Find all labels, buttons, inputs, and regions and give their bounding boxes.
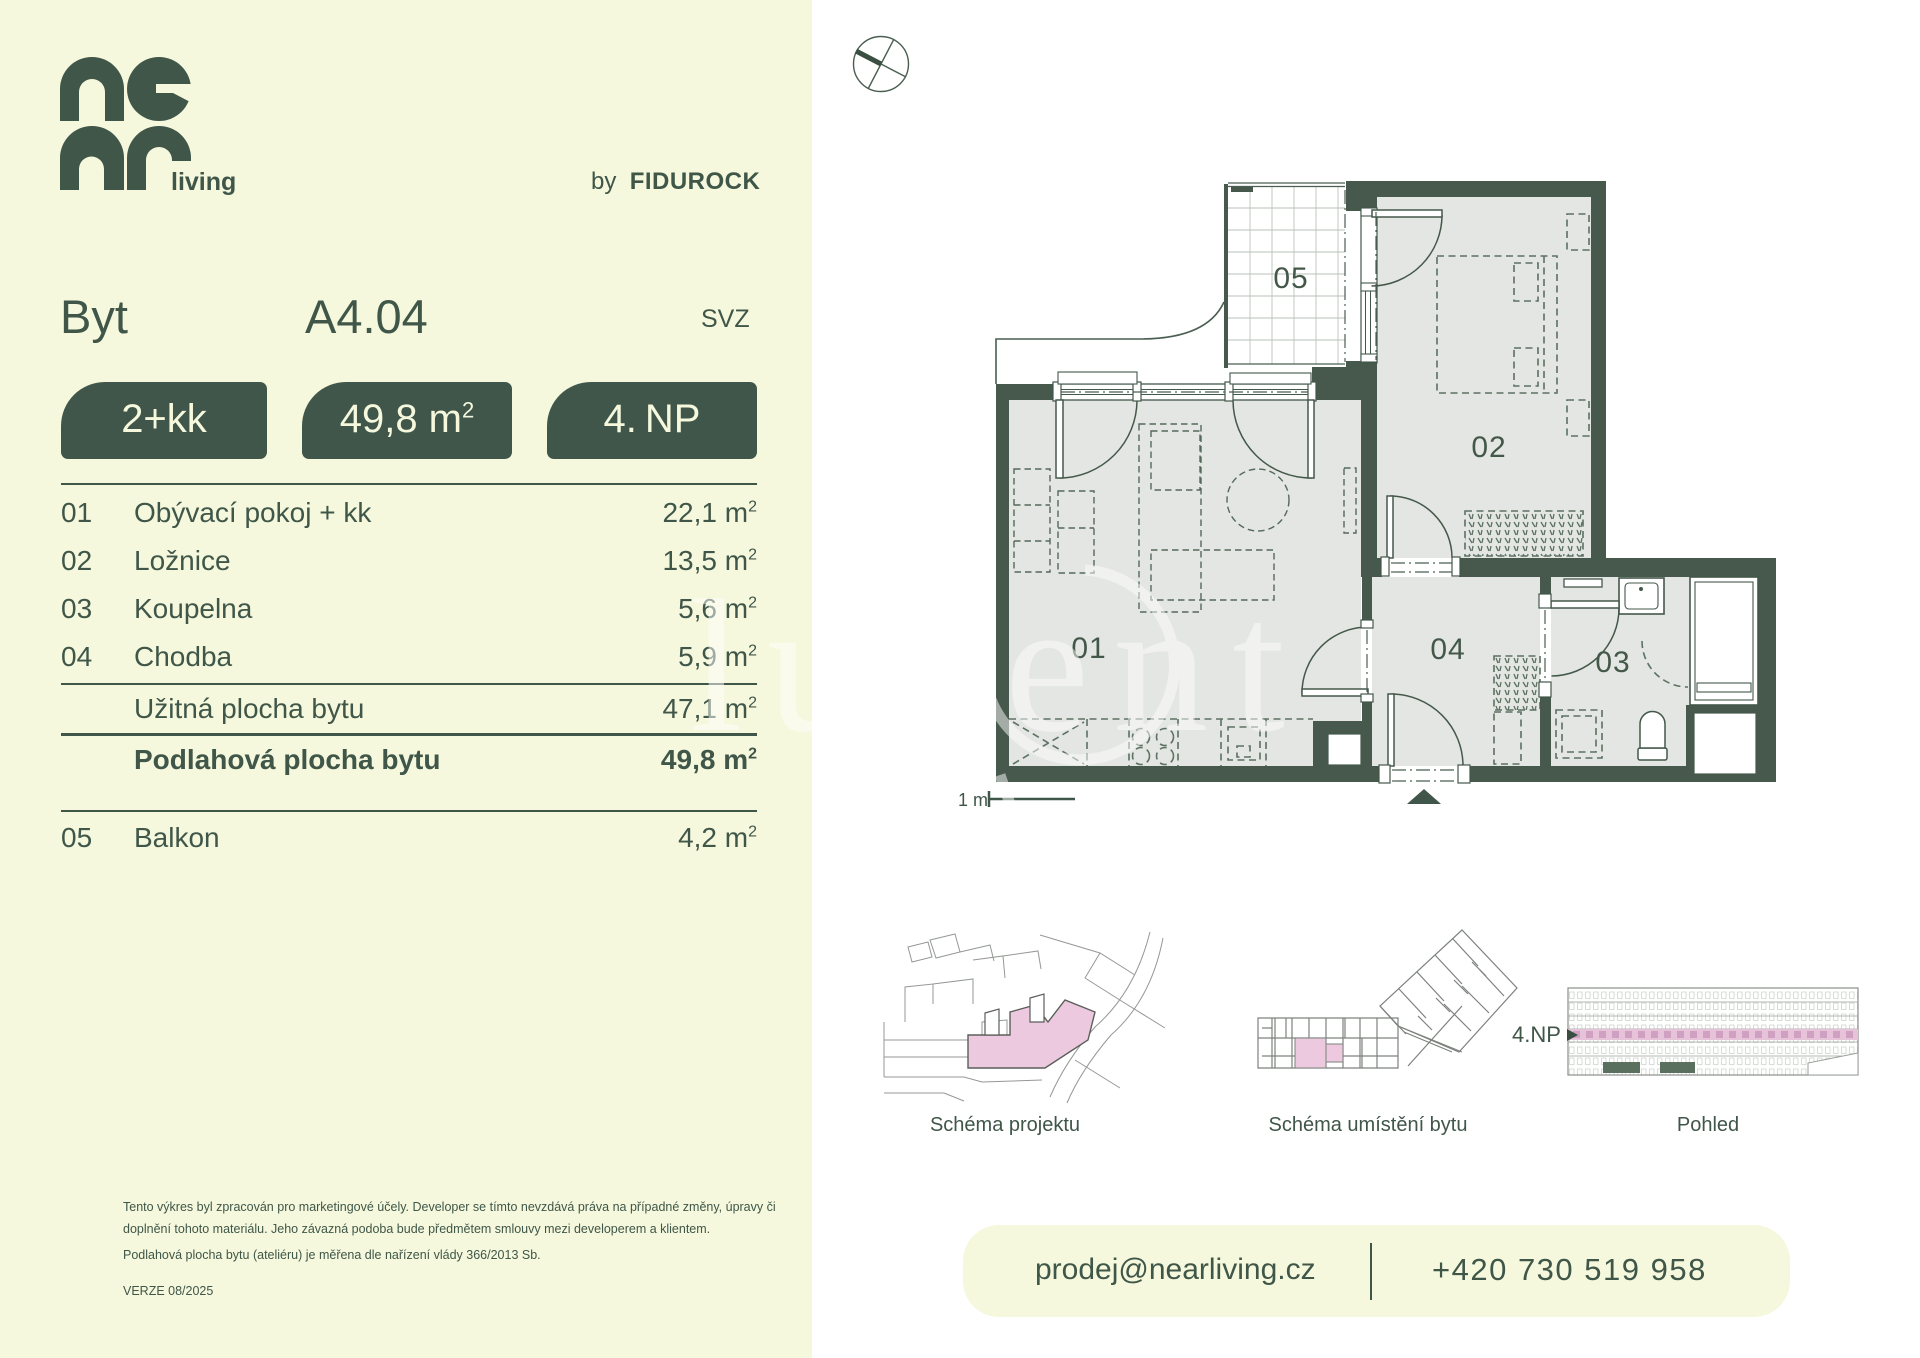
svg-text:05: 05 [1273, 262, 1308, 295]
svg-text:03: 03 [1595, 646, 1630, 679]
svg-text:Schéma umístění bytu: Schéma umístění bytu [1269, 1114, 1468, 1136]
svg-text:02: 02 [1471, 431, 1506, 464]
svg-text:Schéma projektu: Schéma projektu [930, 1114, 1080, 1136]
svg-text:04: 04 [1430, 633, 1465, 666]
svg-text:Pohled: Pohled [1677, 1114, 1739, 1136]
svg-text:luxent: luxent [690, 562, 1309, 772]
svg-text:1 m: 1 m [958, 790, 988, 810]
svg-text:4.NP: 4.NP [1512, 1022, 1561, 1047]
